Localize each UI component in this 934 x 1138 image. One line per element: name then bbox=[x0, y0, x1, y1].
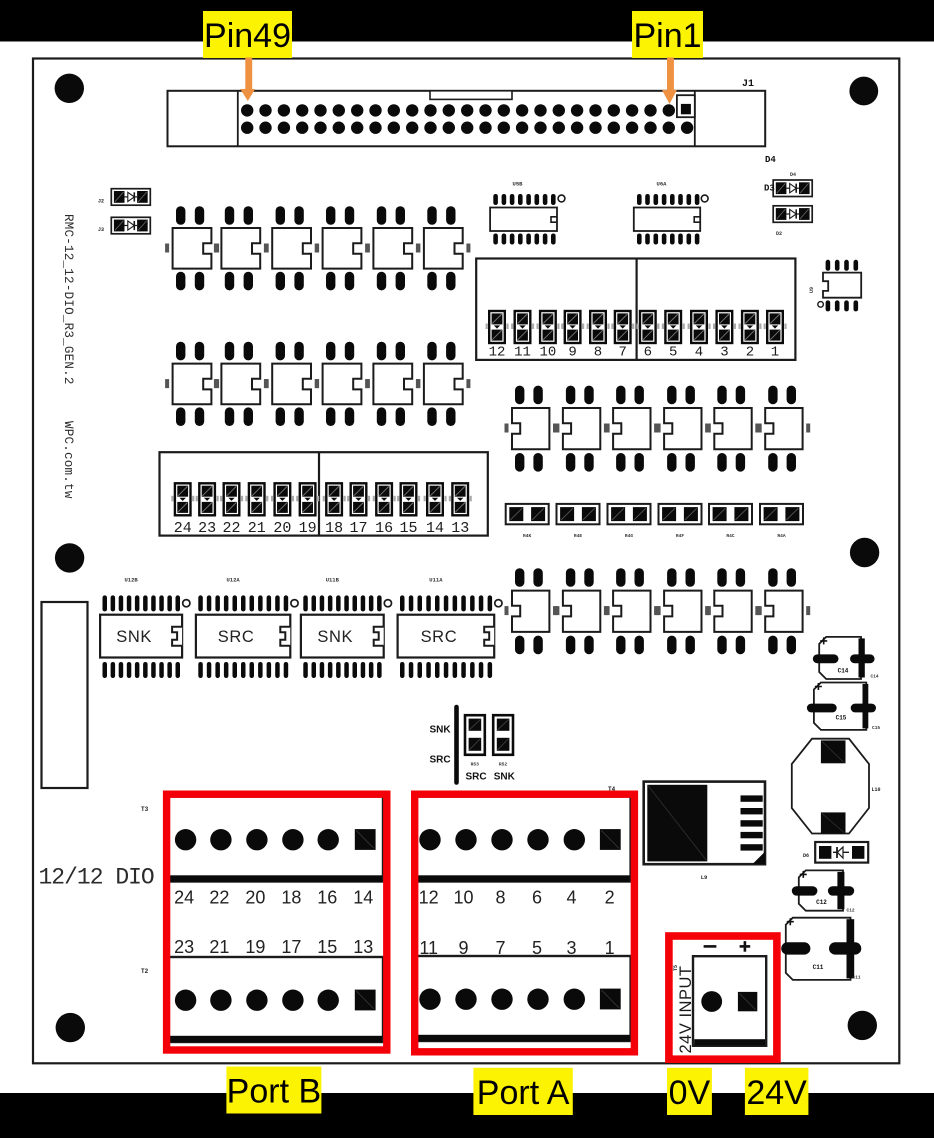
svg-text:R4K: R4K bbox=[523, 533, 532, 539]
svg-text:24: 24 bbox=[174, 888, 194, 908]
svg-text:19: 19 bbox=[299, 520, 317, 537]
svg-text:R4G: R4G bbox=[625, 533, 634, 539]
svg-text:13: 13 bbox=[353, 937, 373, 957]
svg-text:Pin49: Pin49 bbox=[204, 17, 291, 55]
svg-text:R52: R52 bbox=[499, 762, 508, 768]
svg-text:U5B: U5B bbox=[513, 181, 524, 188]
svg-text:7: 7 bbox=[495, 938, 505, 958]
svg-text:3: 3 bbox=[720, 345, 728, 361]
svg-text:D2: D2 bbox=[776, 231, 782, 237]
svg-text:5: 5 bbox=[669, 345, 677, 361]
svg-text:U12B: U12B bbox=[124, 577, 138, 584]
svg-text:SNK: SNK bbox=[116, 628, 152, 646]
svg-text:14: 14 bbox=[426, 520, 444, 537]
svg-text:J2: J2 bbox=[98, 199, 104, 205]
svg-text:6: 6 bbox=[644, 345, 652, 361]
svg-text:U12A: U12A bbox=[226, 577, 240, 584]
svg-text:T3: T3 bbox=[141, 806, 149, 813]
svg-text:18: 18 bbox=[281, 888, 301, 908]
svg-text:C11: C11 bbox=[813, 964, 824, 971]
svg-text:23: 23 bbox=[174, 937, 194, 957]
svg-text:C15: C15 bbox=[836, 715, 847, 722]
svg-text:9: 9 bbox=[568, 345, 576, 361]
svg-text:C11: C11 bbox=[853, 975, 861, 981]
svg-text:U6A: U6A bbox=[657, 181, 668, 188]
svg-text:SNK: SNK bbox=[494, 772, 516, 783]
svg-text:R53: R53 bbox=[471, 762, 480, 768]
svg-text:12: 12 bbox=[419, 888, 439, 908]
svg-text:17: 17 bbox=[349, 520, 367, 537]
svg-text:0V: 0V bbox=[669, 1074, 711, 1112]
svg-text:SNK: SNK bbox=[430, 725, 452, 736]
svg-text:T5: T5 bbox=[673, 965, 679, 971]
svg-text:SRC: SRC bbox=[218, 628, 255, 646]
svg-text:11: 11 bbox=[514, 345, 531, 361]
svg-text:15: 15 bbox=[317, 937, 337, 957]
svg-text:24V INPUT: 24V INPUT bbox=[677, 966, 695, 1054]
svg-text:C14: C14 bbox=[838, 668, 849, 675]
svg-text:9: 9 bbox=[458, 938, 468, 958]
svg-text:10: 10 bbox=[539, 345, 556, 361]
svg-text:SRC: SRC bbox=[430, 755, 451, 766]
svg-text:3: 3 bbox=[566, 938, 576, 958]
svg-text:19: 19 bbox=[245, 937, 265, 957]
svg-text:SRC: SRC bbox=[466, 772, 487, 783]
svg-text:RMC-12_12-DIO_R3_GEN.2: RMC-12_12-DIO_R3_GEN.2 bbox=[61, 214, 75, 385]
svg-text:2: 2 bbox=[746, 345, 754, 361]
svg-text:12/12 DIO: 12/12 DIO bbox=[39, 865, 154, 891]
svg-text:17: 17 bbox=[281, 937, 301, 957]
svg-text:23: 23 bbox=[198, 520, 216, 537]
svg-text:D6: D6 bbox=[803, 853, 809, 859]
svg-text:Port B: Port B bbox=[227, 1073, 321, 1111]
svg-text:SRC: SRC bbox=[421, 628, 458, 646]
svg-text:7: 7 bbox=[618, 345, 626, 361]
svg-text:R4F: R4F bbox=[676, 533, 685, 539]
svg-text:U9: U9 bbox=[809, 287, 815, 293]
svg-text:20: 20 bbox=[273, 520, 291, 537]
svg-text:WPC.com.tw: WPC.com.tw bbox=[61, 421, 75, 499]
svg-text:11: 11 bbox=[419, 938, 438, 958]
svg-text:4: 4 bbox=[566, 888, 576, 908]
svg-text:21: 21 bbox=[248, 520, 266, 537]
svg-text:15: 15 bbox=[399, 520, 417, 537]
svg-text:L10: L10 bbox=[871, 787, 880, 793]
svg-text:24: 24 bbox=[174, 520, 192, 537]
svg-text:C14: C14 bbox=[871, 674, 879, 680]
svg-text:U11A: U11A bbox=[429, 577, 443, 584]
svg-text:J1: J1 bbox=[742, 79, 754, 90]
svg-text:5: 5 bbox=[532, 938, 542, 958]
svg-text:T2: T2 bbox=[141, 968, 149, 975]
svg-text:U11B: U11B bbox=[326, 577, 340, 584]
svg-text:8: 8 bbox=[495, 888, 505, 908]
svg-text:14: 14 bbox=[353, 888, 373, 908]
svg-text:Port A: Port A bbox=[477, 1074, 570, 1112]
svg-text:SNK: SNK bbox=[317, 628, 353, 646]
svg-text:6: 6 bbox=[532, 888, 542, 908]
svg-text:20: 20 bbox=[245, 888, 265, 908]
svg-text:Pin1: Pin1 bbox=[633, 17, 701, 55]
svg-text:1: 1 bbox=[605, 938, 615, 958]
svg-text:8: 8 bbox=[594, 345, 602, 361]
svg-text:10: 10 bbox=[453, 888, 473, 908]
svg-text:4: 4 bbox=[695, 345, 703, 361]
svg-text:21: 21 bbox=[209, 937, 229, 957]
svg-text:R4A: R4A bbox=[777, 533, 786, 539]
svg-text:22: 22 bbox=[222, 520, 240, 537]
svg-text:16: 16 bbox=[317, 888, 337, 908]
svg-text:L9: L9 bbox=[701, 874, 708, 881]
svg-text:22: 22 bbox=[209, 888, 229, 908]
svg-text:16: 16 bbox=[375, 520, 393, 537]
svg-text:13: 13 bbox=[451, 520, 469, 537]
svg-text:18: 18 bbox=[325, 520, 343, 537]
svg-text:R4C: R4C bbox=[726, 533, 735, 539]
svg-text:D3: D3 bbox=[764, 184, 775, 194]
svg-text:J3: J3 bbox=[98, 227, 104, 233]
svg-text:D4: D4 bbox=[790, 172, 796, 178]
svg-text:1: 1 bbox=[771, 345, 779, 361]
svg-text:C12: C12 bbox=[847, 908, 855, 914]
svg-text:C12: C12 bbox=[816, 899, 827, 906]
svg-text:2: 2 bbox=[605, 888, 615, 908]
svg-text:24V: 24V bbox=[746, 1074, 807, 1112]
svg-text:12: 12 bbox=[489, 345, 506, 361]
svg-text:R4E: R4E bbox=[574, 533, 583, 539]
svg-text:D4: D4 bbox=[765, 155, 776, 165]
svg-text:C15: C15 bbox=[872, 725, 880, 731]
